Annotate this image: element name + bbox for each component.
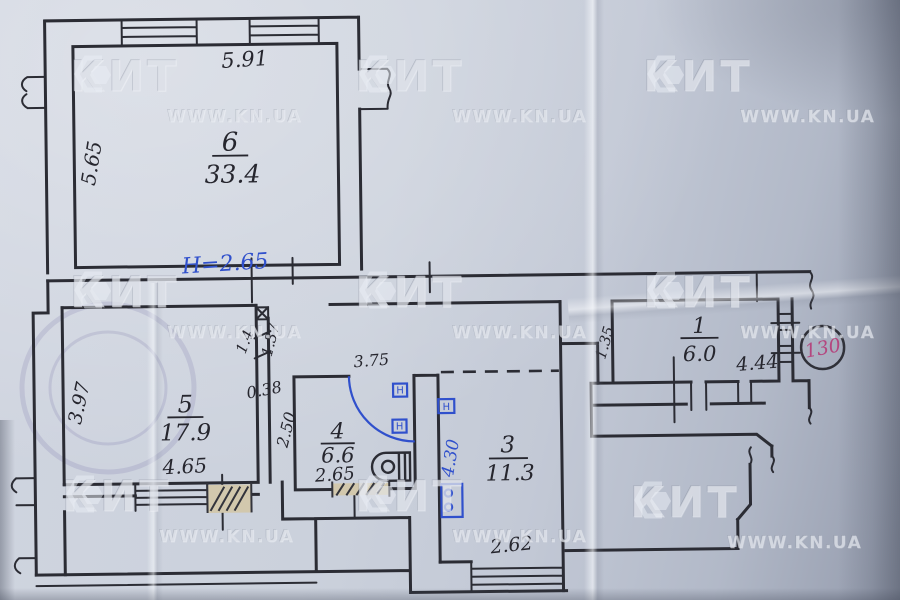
- window-room6: [122, 18, 319, 46]
- dim-room4-bottom: 2.65: [313, 463, 355, 487]
- floorplan-photo: Н Н Н 6 33.4 5 17.9 4 6.6 3 11.3 1 6.0 5…: [0, 0, 900, 600]
- floorplan-drawing: Н Н Н 6 33.4 5 17.9 4 6.6 3 11.3 1 6.0 5…: [0, 0, 900, 600]
- radiator-letter-1: Н: [396, 386, 404, 397]
- entry-walls: [565, 464, 751, 550]
- stove-symbol: [441, 484, 462, 517]
- bathtub: [372, 453, 410, 481]
- room3-area: 11.3: [485, 461, 534, 487]
- bathtub-drain: [382, 461, 394, 473]
- blue-letters: Н Н Н: [395, 385, 450, 433]
- dim-room1-bottom: 4.44: [734, 351, 779, 376]
- dim-pier-width: 0.38: [245, 377, 284, 402]
- dim-room3-bottom: 2.62: [488, 532, 533, 558]
- room5-area: 17.9: [160, 420, 212, 447]
- plan-number-text: 130: [803, 334, 843, 362]
- room6-number: 6: [222, 128, 239, 158]
- door-openings: [207, 481, 389, 513]
- room3-number: 3: [500, 432, 515, 458]
- dim-room5-bottom: 4.65: [161, 453, 208, 479]
- walls: [30, 12, 814, 597]
- stove-burner-2: [445, 503, 452, 510]
- room3-dashed-boundary: [441, 371, 559, 372]
- room1-area: 6.0: [683, 342, 717, 366]
- dim-room6-top: 5.91: [221, 46, 269, 73]
- window-room3: [471, 561, 563, 592]
- radiator-letter-3: Н: [442, 402, 450, 413]
- dim-room3-left-blue: 4.30: [438, 438, 464, 480]
- dim-room5-left: 3.97: [64, 379, 95, 426]
- round-stamp-imprint: [22, 304, 194, 472]
- plan-number-stamp: 130: [801, 326, 845, 370]
- door-room5: [207, 484, 251, 513]
- dim-hall-top: 3.75: [353, 350, 390, 372]
- height-note: H=2.65: [180, 249, 269, 280]
- dim-opening-a: 1.4: [232, 327, 257, 356]
- room1-number: 1: [692, 314, 706, 339]
- dimension-ticks: [219, 252, 759, 530]
- radiator-letter-2: Н: [396, 422, 404, 433]
- window-room5: [135, 483, 207, 511]
- room6-area: 33.4: [204, 159, 260, 189]
- dim-room6-left: 5.65: [76, 139, 107, 187]
- dim-opening-b: 1.37: [258, 321, 284, 358]
- stove-burner-1: [445, 489, 452, 496]
- room4-number: 4: [329, 419, 344, 444]
- room5-number: 5: [177, 390, 193, 418]
